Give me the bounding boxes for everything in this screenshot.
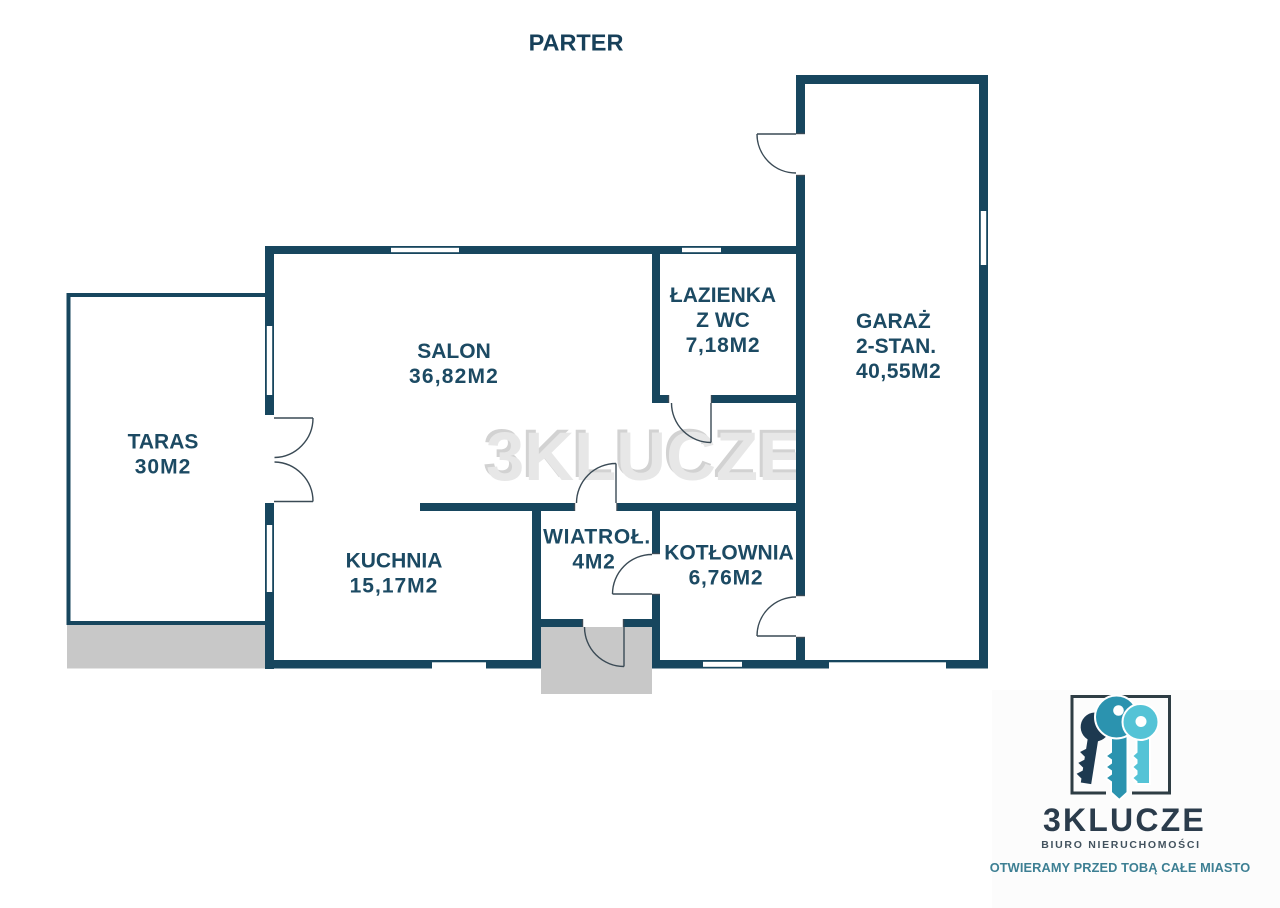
svg-text:TARAS: TARAS <box>128 431 199 454</box>
svg-text:GARAŻ: GARAŻ <box>856 310 931 333</box>
svg-text:15,17M2: 15,17M2 <box>350 575 439 598</box>
svg-text:BIURO NIERUCHOMOŚCI: BIURO NIERUCHOMOŚCI <box>1041 838 1200 851</box>
svg-text:KUCHNIA: KUCHNIA <box>346 550 443 573</box>
svg-text:4M2: 4M2 <box>572 551 615 574</box>
svg-text:OTWIERAMY PRZED TOBĄ CAŁE MIAS: OTWIERAMY PRZED TOBĄ CAŁE MIASTO <box>990 860 1251 875</box>
svg-text:6,76M2: 6,76M2 <box>689 567 764 590</box>
svg-text:7,18M2: 7,18M2 <box>686 334 761 357</box>
svg-text:PARTER: PARTER <box>529 30 624 56</box>
svg-text:2-STAN.: 2-STAN. <box>856 335 936 358</box>
svg-text:36,82M2: 36,82M2 <box>409 365 499 388</box>
svg-text:WIATROŁ.: WIATROŁ. <box>543 526 651 549</box>
svg-text:KOTŁOWNIA: KOTŁOWNIA <box>664 542 793 565</box>
svg-text:40,55M2: 40,55M2 <box>856 360 941 383</box>
svg-text:30M2: 30M2 <box>135 456 192 479</box>
svg-text:3KLUCZE: 3KLUCZE <box>1043 802 1206 838</box>
svg-text:3KLUCZE: 3KLUCZE <box>486 418 804 495</box>
svg-text:SALON: SALON <box>417 340 491 363</box>
svg-text:Z WC: Z WC <box>696 309 750 332</box>
svg-text:ŁAZIENKA: ŁAZIENKA <box>670 284 776 307</box>
